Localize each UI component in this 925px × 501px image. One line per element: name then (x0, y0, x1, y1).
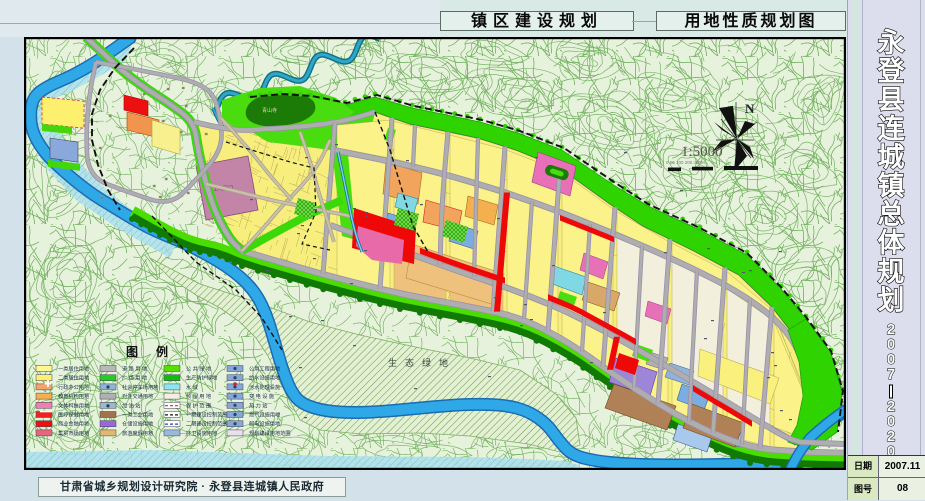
svg-text:青山寺: 青山寺 (262, 107, 277, 114)
svg-text:行政办公用地: 行政办公用地 (58, 383, 89, 391)
svg-text:给水设施用地: 给水设施用地 (249, 374, 280, 382)
svg-text:总: 总 (878, 200, 905, 230)
svg-text:N: N (745, 101, 755, 116)
svg-text:教育机构用地: 教育机构用地 (58, 392, 89, 400)
svg-text:0: 0 (887, 443, 895, 455)
svg-text:登: 登 (877, 57, 906, 87)
svg-text:公用工程用地: 公用工程用地 (249, 365, 280, 373)
svg-text:7: 7 (887, 366, 895, 383)
svg-text:0 50 100 200: 0 50 100 200 400M (666, 160, 705, 165)
svg-text:医疗保健用地: 医疗保健用地 (58, 411, 89, 419)
svg-text:规划建设用地范围: 规划建设用地范围 (249, 429, 291, 437)
svg-text:热 力 站: 热 力 站 (249, 401, 267, 409)
svg-text:保 护 范 围: 保 护 范 围 (186, 401, 211, 409)
svg-text:加 油 站: 加 油 站 (122, 401, 140, 409)
svg-text:生产防护绿地: 生产防护绿地 (186, 374, 217, 382)
svg-text:集贸市场用地: 集贸市场用地 (58, 429, 89, 437)
svg-text:体: 体 (878, 228, 906, 258)
svg-text:道 路 用 地: 道 路 用 地 (122, 365, 147, 373)
svg-text:规: 规 (878, 257, 905, 287)
svg-text:1:5000: 1:5000 (681, 144, 723, 160)
svg-text:广 场 用 地: 广 场 用 地 (122, 374, 147, 382)
svg-text:生态绿地: 生态绿地 (388, 357, 456, 368)
svg-text:变 电 设 施: 变 电 设 施 (249, 392, 274, 400)
svg-text:连: 连 (878, 113, 906, 144)
svg-text:一期建设控制范围: 一期建设控制范围 (186, 411, 228, 419)
svg-text:二类居住用地: 二类居住用地 (58, 374, 89, 382)
svg-text:文体科技用地: 文体科技用地 (58, 401, 89, 409)
svg-text:仓储设施用地: 仓储设施用地 (122, 420, 153, 428)
svg-text:社会停车场用地: 社会停车场用地 (122, 383, 158, 391)
svg-text:城: 城 (878, 142, 905, 172)
svg-text:污水处理设施: 污水处理设施 (249, 383, 280, 391)
svg-text:燃气设施用地: 燃气设施用地 (249, 411, 280, 419)
svg-text:县: 县 (878, 85, 905, 115)
svg-text:永: 永 (877, 28, 905, 58)
svg-text:水 域: 水 域 (186, 383, 198, 391)
svg-text:对外交通用地: 对外交通用地 (122, 392, 153, 400)
svg-text:环卫设施用地: 环卫设施用地 (186, 429, 217, 437)
svg-text:图例: 图例 (126, 344, 186, 359)
svg-text:一类工业用地: 一类工业用地 (122, 411, 153, 419)
svg-text:商业金融用地: 商业金融用地 (58, 420, 89, 428)
svg-text:一类居住用地: 一类居住用地 (58, 365, 89, 373)
svg-text:划: 划 (878, 285, 905, 315)
svg-text:公 共 绿 地: 公 共 绿 地 (186, 365, 211, 373)
svg-text:邮电设施用地: 邮电设施用地 (249, 420, 280, 428)
svg-text:镇: 镇 (878, 171, 905, 201)
svg-text:预 留 用 地: 预 留 用 地 (186, 392, 211, 400)
svg-text:二期建设控制范围: 二期建设控制范围 (186, 420, 228, 428)
svg-text:旅游度假用地: 旅游度假用地 (122, 429, 153, 437)
